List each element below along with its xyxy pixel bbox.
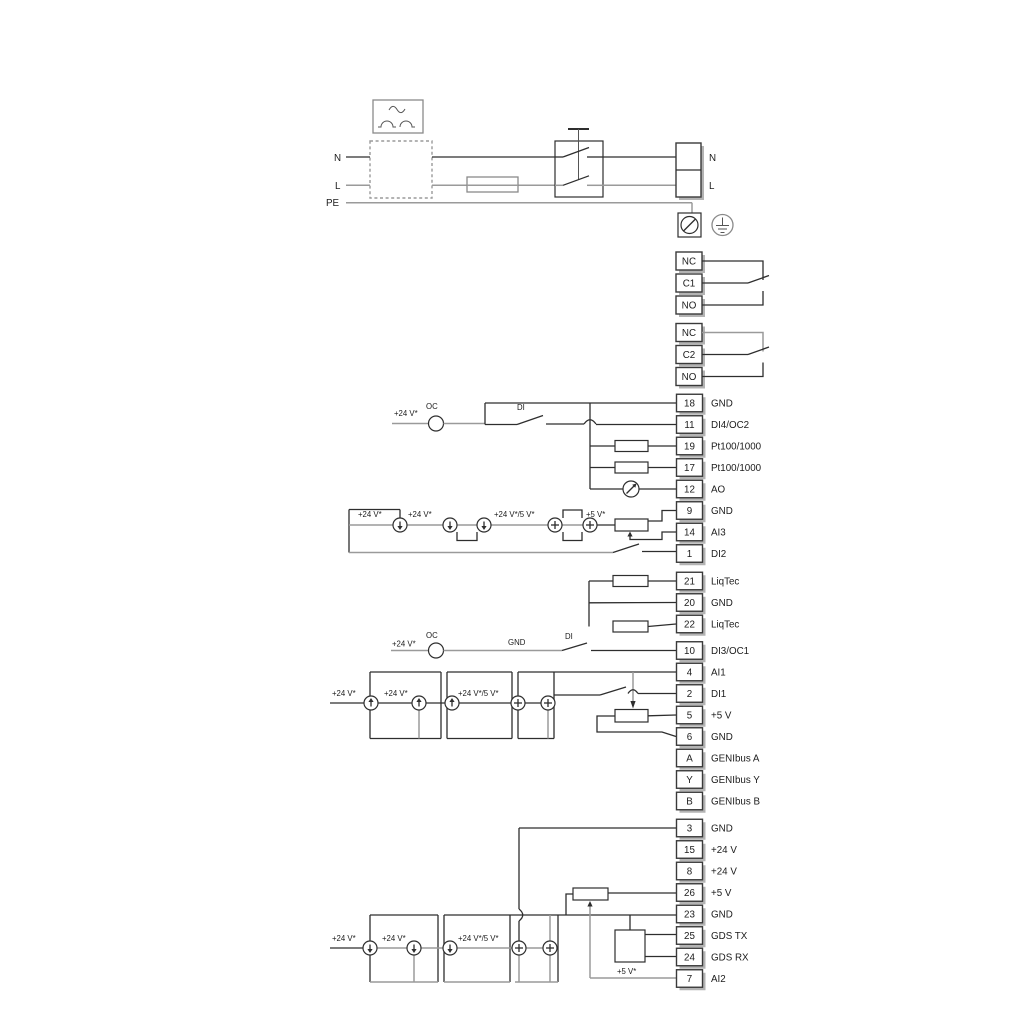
ac-supply-icon [373, 100, 423, 133]
terminal-row: 15 +24 V [677, 841, 738, 862]
liqtec-sensor-symbol [613, 576, 648, 587]
terminal-row: 18 GND [677, 394, 733, 415]
main-switch-symbol [555, 129, 603, 197]
relay2-contact-symbol [702, 333, 769, 377]
svg-text:6: 6 [687, 732, 693, 743]
gds-module-box [615, 930, 645, 962]
svg-text:3: 3 [687, 824, 693, 835]
terminal-row: 21 LiqTec [677, 572, 740, 593]
current-source-up-icon [445, 696, 459, 710]
label-l-out: L [709, 181, 715, 192]
circuit-ai1-di1: +24 V* +24 V* +24 V*/5 V* [330, 672, 676, 739]
svg-text:5: 5 [687, 711, 693, 722]
terminal-row: B GENIbus B [677, 792, 761, 813]
svg-text:23: 23 [684, 910, 695, 921]
mains-terminal-block: N L [676, 143, 716, 200]
svg-text:+24 V: +24 V [711, 867, 737, 878]
analog-gauge-icon [623, 481, 639, 497]
label-n-in: N [334, 153, 341, 164]
circuit-ai3-di2: +24 V* +24 V* +24 V*/5 V* +5 V* [349, 510, 676, 553]
circuit-di4-oc2: +24 V* OC DI [392, 402, 676, 497]
terminal-row: 26 +5 V [677, 884, 732, 905]
svg-text:GDS TX: GDS TX [711, 931, 748, 942]
svg-text:GENIbus B: GENIbus B [711, 797, 760, 808]
label-oc: OC [426, 402, 438, 411]
terminal-row: 22 LiqTec [677, 615, 740, 636]
terminal-row: 12 AO [677, 480, 726, 501]
label-24v: +24 V* [408, 510, 432, 519]
svg-text:LiqTec: LiqTec [711, 577, 739, 588]
svg-text:A: A [686, 754, 693, 765]
svg-text:1: 1 [687, 549, 692, 560]
terminal-row: 17 Pt100/1000 [677, 459, 762, 480]
label-l-in: L [335, 181, 341, 192]
relay2-no: NO [682, 372, 697, 383]
svg-text:+24 V: +24 V [711, 845, 737, 856]
svg-text:AI2: AI2 [711, 974, 726, 985]
relay1-nc: NC [682, 257, 696, 268]
wiring-diagram-page: N L PE N L [0, 0, 1024, 1024]
relay1-contact-symbol [702, 261, 769, 305]
liqtec-sensor-symbol [613, 621, 648, 632]
terminal-row: 23 GND [677, 905, 733, 926]
terminal-row: 24 GDS RX [677, 948, 750, 969]
label-24v-5v: +24 V*/5 V* [458, 689, 499, 698]
current-source-down-icon [443, 518, 457, 532]
relay-1: NC C1 NO [676, 252, 769, 317]
label-24v-5v: +24 V*/5 V* [494, 510, 535, 519]
voltage-source-plus-icon [583, 518, 597, 532]
terminal-strip-c: 10 DI3/OC1 4 AI1 2 DI1 5 +5 V 6 GND A GE… [677, 642, 761, 813]
voltage-source-plus-icon [548, 518, 562, 532]
svg-text:Y: Y [686, 775, 693, 786]
terminal-row: 8 +24 V [677, 862, 738, 883]
circuit-di3-oc1: +24 V* OC GND DI [391, 631, 676, 658]
circuit-liqtec [589, 576, 676, 633]
current-source-up-icon [364, 696, 378, 710]
relay-2: NC C2 NO [676, 324, 769, 389]
terminal-row: Y GENIbus Y [677, 771, 761, 792]
potentiometer-symbol [573, 888, 608, 900]
terminal-row: 2 DI1 [677, 685, 727, 706]
open-collector-icon [429, 643, 444, 658]
svg-text:GND: GND [711, 506, 733, 517]
svg-text:GENIbus Y: GENIbus Y [711, 775, 760, 786]
label-24v: +24 V* [358, 510, 382, 519]
terminal-row: 14 AI3 [677, 523, 727, 544]
svg-text:8: 8 [687, 867, 693, 878]
terminal-row: 11 DI4/OC2 [677, 416, 750, 437]
label-gnd: GND [508, 638, 526, 647]
svg-text:21: 21 [684, 577, 695, 588]
svg-text:GND: GND [711, 824, 733, 835]
label-n-out: N [709, 153, 716, 164]
svg-text:AO: AO [711, 485, 726, 496]
svg-text:9: 9 [687, 506, 692, 517]
svg-text:GND: GND [711, 598, 733, 609]
svg-text:B: B [686, 797, 693, 808]
terminal-row: 7 AI2 [677, 970, 726, 991]
terminal-row: 4 AI1 [677, 663, 726, 684]
label-24v: +24 V* [382, 934, 406, 943]
current-source-down-icon [477, 518, 491, 532]
svg-text:11: 11 [684, 420, 694, 431]
svg-text:15: 15 [684, 845, 695, 856]
pt-sensor-symbol [615, 462, 648, 473]
current-source-up-icon [412, 696, 426, 710]
svg-text:25: 25 [684, 931, 695, 942]
current-source-down-icon [443, 941, 457, 955]
terminal-row: A GENIbus A [677, 749, 760, 770]
potentiometer-symbol [615, 519, 648, 531]
svg-text:24: 24 [684, 953, 695, 964]
voltage-source-plus-icon [541, 696, 555, 710]
label-di: DI [517, 403, 525, 412]
svg-text:GENIbus A: GENIbus A [711, 754, 760, 765]
terminal-row: 20 GND [677, 594, 733, 615]
terminal-row: 5 +5 V [677, 706, 732, 727]
svg-text:20: 20 [684, 598, 695, 609]
svg-text:AI1: AI1 [711, 668, 726, 679]
svg-text:7: 7 [687, 974, 692, 985]
label-di: DI [565, 632, 573, 641]
relay1-no: NO [682, 301, 697, 312]
label-24v: +24 V* [394, 409, 418, 418]
svg-text:2: 2 [687, 689, 692, 700]
svg-text:GDS RX: GDS RX [711, 953, 749, 964]
svg-text:DI4/OC2: DI4/OC2 [711, 420, 749, 431]
circuit-gds-ai2: +24 V* +24 V* +24 V*/5 V* +5 V* [330, 828, 676, 982]
terminal-strip-b: 21 LiqTec 20 GND 22 LiqTec [677, 572, 740, 636]
svg-text:14: 14 [684, 528, 695, 539]
pt-sensor-symbol [615, 441, 648, 452]
earth-ground-icon [712, 215, 733, 236]
svg-text:GND: GND [711, 732, 733, 743]
svg-text:19: 19 [684, 442, 695, 453]
voltage-source-plus-icon [512, 941, 526, 955]
terminal-row: 9 GND [677, 502, 733, 523]
svg-text:Pt100/1000: Pt100/1000 [711, 463, 762, 474]
terminal-row: 1 DI2 [677, 545, 727, 566]
svg-text:AI3: AI3 [711, 528, 726, 539]
label-24v: +24 V* [392, 640, 416, 649]
svg-text:22: 22 [684, 620, 695, 631]
terminal-strip-d: 3 GND 15 +24 V 8 +24 V 26 +5 V 23 GND 25… [677, 819, 750, 990]
svg-text:10: 10 [684, 646, 695, 657]
label-24v-5v: +24 V*/5 V* [458, 934, 499, 943]
wiper-arrow-icon [627, 532, 632, 537]
svg-text:DI2: DI2 [711, 549, 726, 560]
wiper-arrow-icon [587, 901, 592, 907]
pe-screw-terminal-icon [678, 213, 701, 237]
current-source-down-icon [363, 941, 377, 955]
potentiometer-symbol [615, 710, 648, 723]
relay2-nc: NC [682, 328, 696, 339]
svg-text:DI1: DI1 [711, 689, 726, 700]
current-source-down-icon [407, 941, 421, 955]
mains-power-section: N L PE N L [326, 100, 733, 237]
terminal-strip-a: 18 GND 11 DI4/OC2 19 Pt100/1000 17 Pt100… [677, 394, 762, 565]
svg-text:DI3/OC1: DI3/OC1 [711, 646, 749, 657]
label-24v: +24 V* [332, 934, 356, 943]
emc-filter-box [370, 141, 432, 198]
relay2-c2: C2 [683, 350, 696, 361]
relay1-c1: C1 [683, 279, 696, 290]
wiper-arrow-icon [630, 701, 635, 709]
label-24v: +24 V* [332, 689, 356, 698]
label-pe: PE [326, 198, 340, 209]
svg-text:17: 17 [684, 463, 695, 474]
current-source-down-icon [393, 518, 407, 532]
svg-text:Pt100/1000: Pt100/1000 [711, 442, 762, 453]
open-collector-icon [429, 416, 444, 431]
svg-text:18: 18 [684, 399, 695, 410]
svg-text:GND: GND [711, 910, 733, 921]
terminal-row: 6 GND [677, 728, 733, 749]
svg-text:LiqTec: LiqTec [711, 620, 739, 631]
terminal-row: 19 Pt100/1000 [677, 437, 762, 458]
label-5v: +5 V* [617, 967, 636, 976]
fuse-symbol [467, 177, 518, 192]
wiring-diagram: N L PE N L [0, 0, 1024, 1024]
terminal-row: 3 GND [677, 819, 733, 840]
terminal-row: 10 DI3/OC1 [677, 642, 750, 663]
terminal-row: 25 GDS TX [677, 927, 748, 948]
svg-text:+5 V: +5 V [711, 888, 732, 899]
voltage-source-plus-icon [543, 941, 557, 955]
svg-text:4: 4 [687, 668, 693, 679]
svg-text:26: 26 [684, 888, 695, 899]
svg-text:12: 12 [684, 485, 695, 496]
voltage-source-plus-icon [511, 696, 525, 710]
label-24v: +24 V* [384, 689, 408, 698]
label-oc: OC [426, 631, 438, 640]
svg-text:GND: GND [711, 399, 733, 410]
svg-text:+5 V: +5 V [711, 711, 732, 722]
